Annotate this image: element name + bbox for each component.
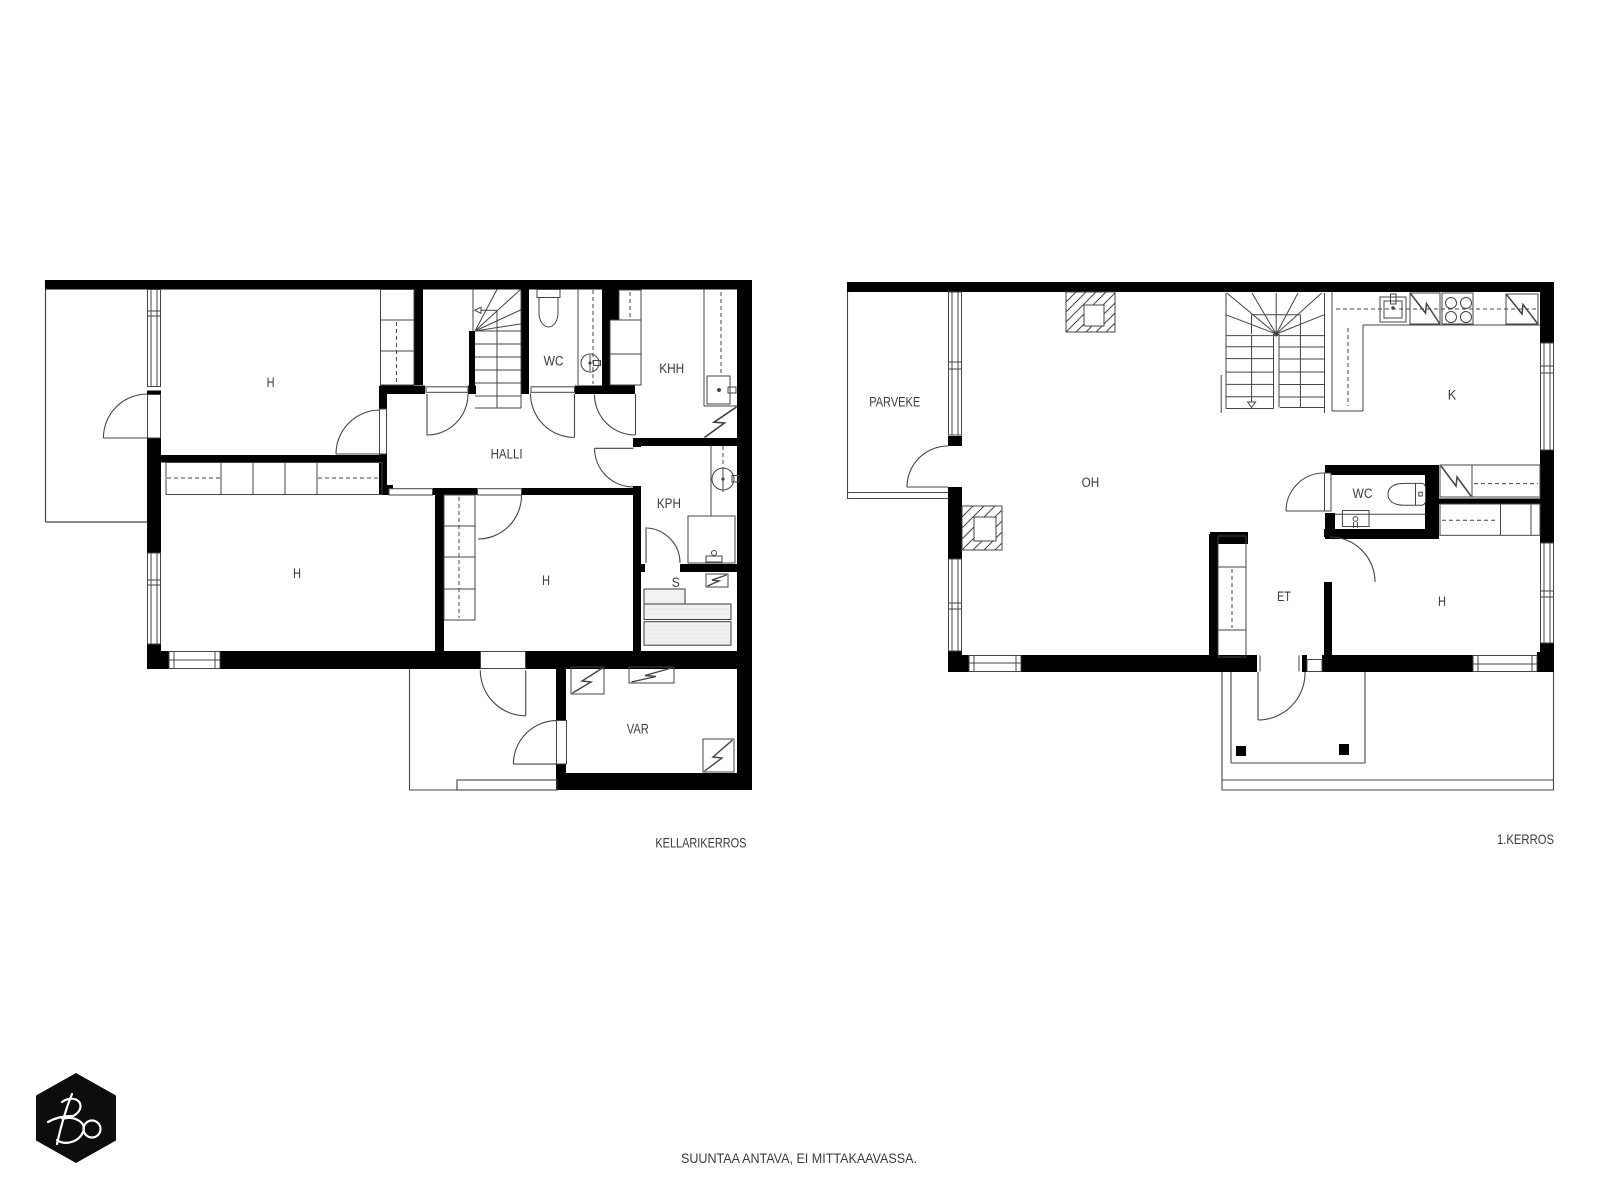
svg-text:ET: ET [1277, 589, 1291, 604]
svg-text:S: S [672, 575, 680, 590]
svg-text:K: K [1448, 388, 1457, 403]
svg-text:VAR: VAR [627, 722, 649, 737]
svg-text:PARVEKE: PARVEKE [869, 395, 920, 410]
svg-text:H: H [267, 375, 275, 390]
svg-text:H: H [542, 573, 550, 588]
svg-text:1.KERROS: 1.KERROS [1497, 831, 1554, 847]
svg-text:SUUNTAA ANTAVA, EI MITTAKAAVAS: SUUNTAA ANTAVA, EI MITTAKAAVASSA. [681, 1150, 917, 1166]
svg-text:H: H [1438, 594, 1446, 609]
svg-text:WC: WC [1353, 486, 1373, 501]
svg-text:H: H [293, 566, 301, 581]
svg-text:HALLI: HALLI [491, 447, 523, 462]
svg-text:OH: OH [1082, 475, 1100, 490]
svg-text:KHH: KHH [659, 361, 684, 376]
svg-text:KELLARIKERROS: KELLARIKERROS [655, 835, 746, 851]
svg-text:KPH: KPH [657, 496, 681, 511]
svg-text:WC: WC [544, 354, 564, 369]
